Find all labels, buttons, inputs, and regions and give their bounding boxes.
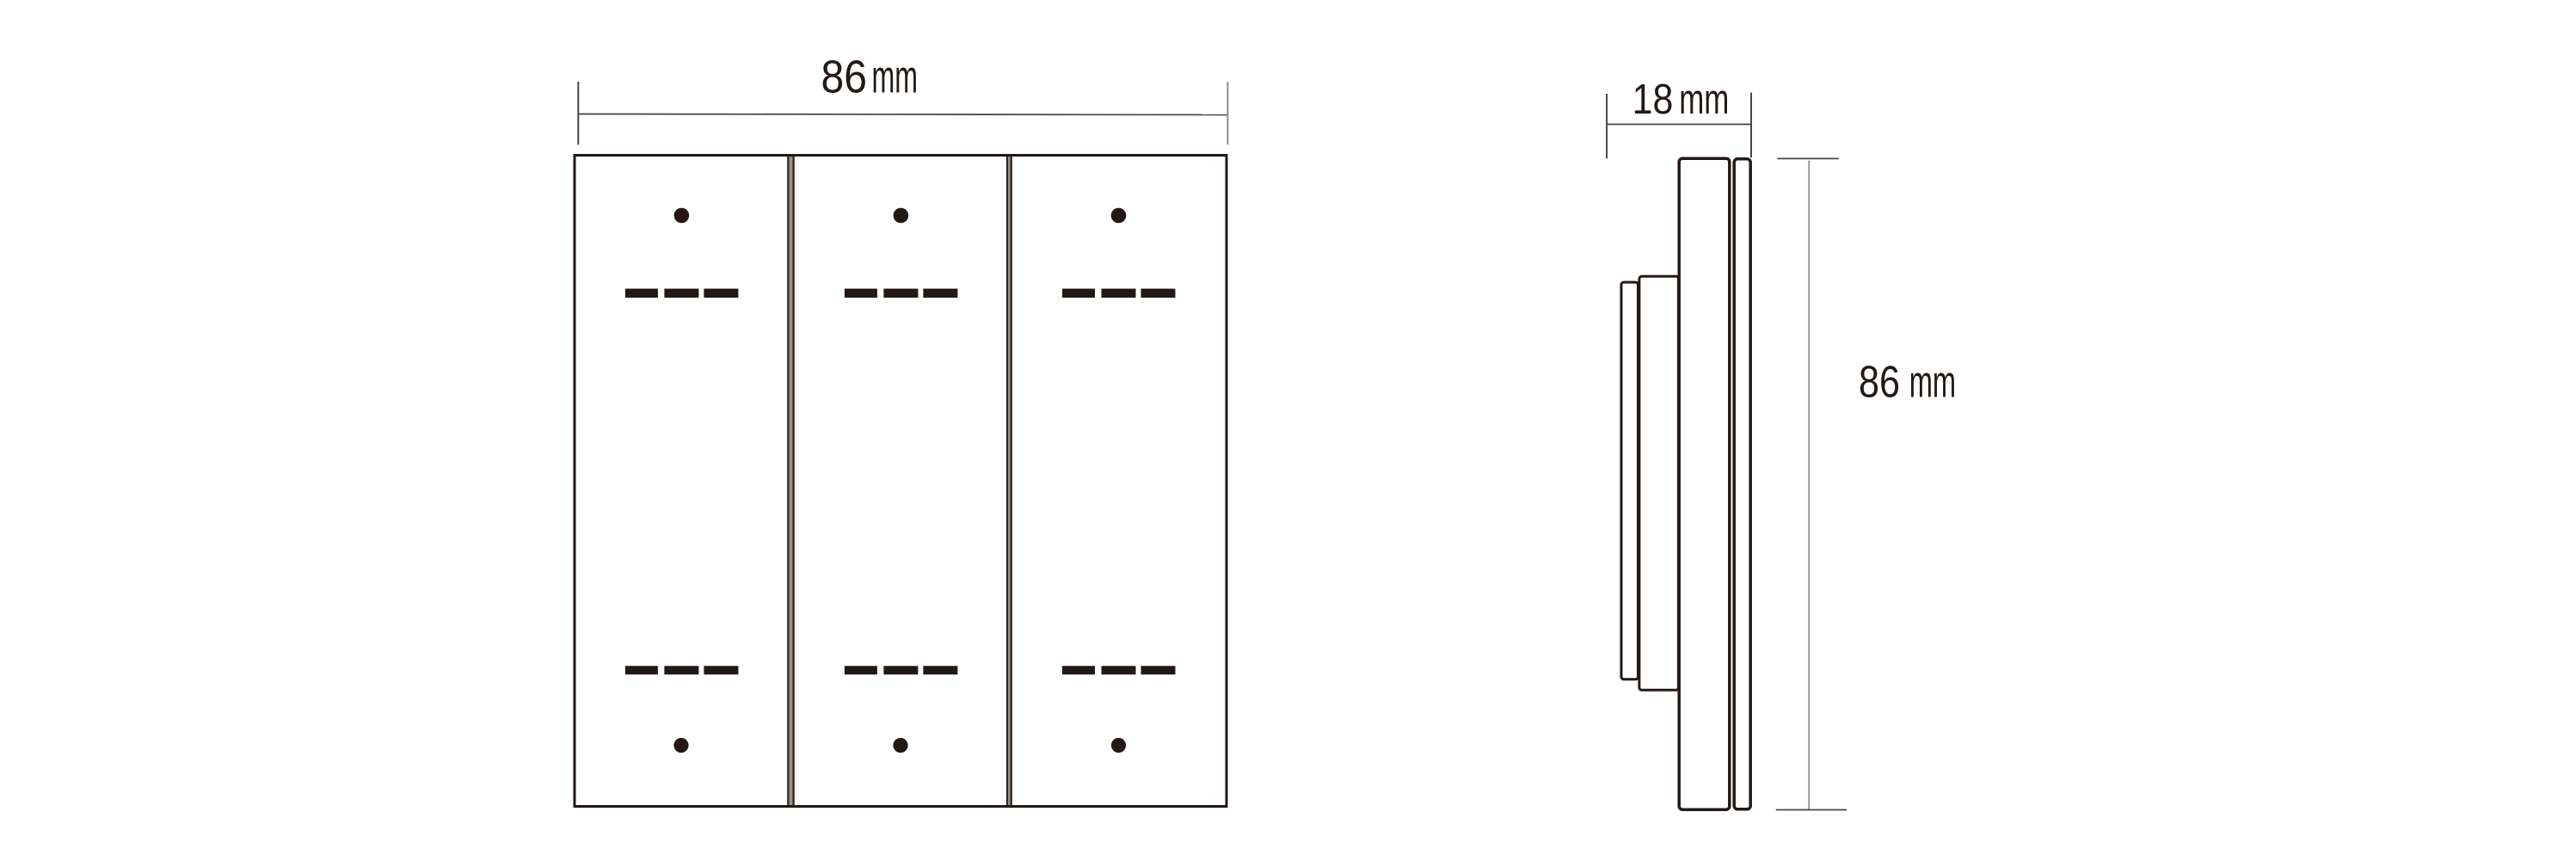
svg-text:mm: mm (1679, 77, 1729, 123)
svg-text:18: 18 (1632, 77, 1674, 123)
svg-text:mm: mm (1909, 358, 1956, 408)
svg-text:86: 86 (821, 52, 868, 103)
svg-text:86: 86 (1859, 358, 1900, 408)
svg-text:mm: mm (872, 52, 919, 103)
